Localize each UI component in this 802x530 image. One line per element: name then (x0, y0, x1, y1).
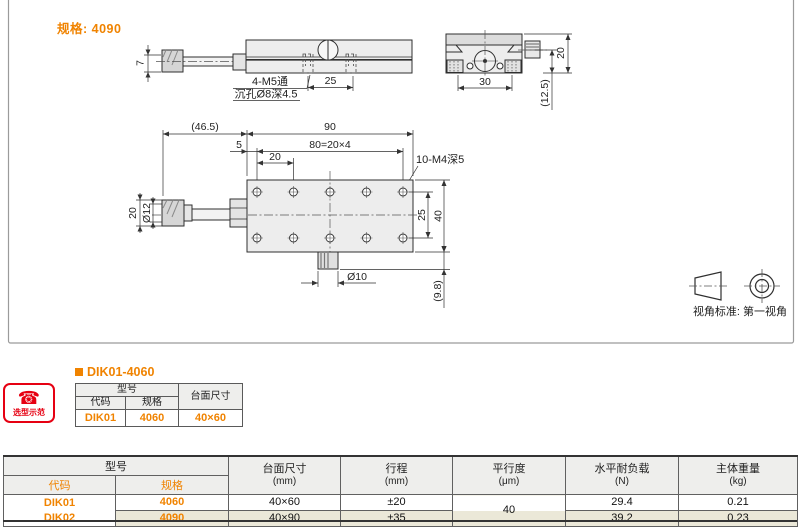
telephone-icon: ☎ (18, 389, 40, 407)
dim-plan-80: 80=20×4 (309, 139, 351, 151)
dim-side-25: 25 (325, 75, 337, 87)
bottom-rule (3, 520, 797, 522)
dim-end-20: 20 (555, 47, 567, 59)
selection-example-label: 选型示范 (13, 407, 45, 418)
dim-plan-9-8: (9.8) (432, 280, 444, 302)
dim-plan-90: 90 (324, 121, 336, 133)
header-model: 型号 (4, 456, 229, 476)
table-row: DIK01 DIK02 4060 40×60 ±20 40 29.4 0.21 (4, 495, 798, 511)
travel-value: ±20 (341, 495, 453, 511)
dim-plan-46-5: (46.5) (191, 121, 218, 133)
example-spec-header: 规格 (126, 397, 179, 410)
load-value: 29.4 (566, 495, 679, 511)
header-size: 台面尺寸 (mm) (229, 456, 341, 495)
example-code-header: 代码 (76, 397, 126, 410)
header-parallelism: 平行度 (μm) (453, 456, 566, 495)
spec-value: 4090 (116, 511, 229, 527)
header-spec: 规格 (116, 476, 229, 495)
header-code: 代码 (4, 476, 116, 495)
size-value: 40×60 (229, 495, 341, 511)
travel-value: ±35 (341, 511, 453, 527)
selection-example-badge: ☎ 选型示范 (3, 383, 55, 423)
example-size-header: 台面尺寸 (179, 384, 243, 410)
dim-plan-5: 5 (236, 139, 242, 151)
dim-plan-40: 40 (432, 210, 444, 222)
example-code-value: DIK01 (76, 410, 126, 427)
bullet-square-icon (75, 368, 83, 376)
example-size-value: 40×60 (179, 410, 243, 427)
dim-side-height: 7 (134, 60, 146, 66)
spec-note: 规格: 4090 (57, 18, 121, 37)
example-model-header: 型号 (76, 384, 179, 397)
example-title-text: DIK01-4060 (87, 365, 154, 379)
header-load: 水平耐负载 (N) (566, 456, 679, 495)
spec-table: 型号 台面尺寸 (mm) 行程 (mm) 平行度 (μm) 水平耐负载 (N) … (3, 455, 798, 527)
dim-end-30: 30 (479, 76, 491, 88)
dim-plan-20: 20 (269, 151, 281, 163)
example-spec-value: 4060 (126, 410, 179, 427)
dim-knob-d12: Ø12 (141, 203, 153, 223)
weight-value: 0.21 (679, 495, 798, 511)
label-plan-tap: 10-M4深5 (416, 153, 464, 166)
dim-end-12-5: (12.5) (539, 79, 551, 106)
dim-plan-d10: Ø10 (347, 271, 367, 283)
technical-drawing-section: 规格: 4090 (0, 0, 802, 350)
dim-knob-20: 20 (127, 207, 139, 219)
header-travel: 行程 (mm) (341, 456, 453, 495)
dim-plan-25: 25 (416, 209, 428, 221)
label-side-counterbore: 沉孔Ø8深4.5 (235, 88, 298, 101)
selection-example-block: DIK01-4060 型号 台面尺寸 代码 规格 DIK01 4060 40×6… (75, 365, 243, 427)
label-side-hole-spec: 4-M5通 (252, 75, 288, 88)
table-row: 4090 40×90 ±35 39.2 0.23 (4, 511, 798, 527)
spec-value: 4060 (116, 495, 229, 511)
load-value: 39.2 (566, 511, 679, 527)
weight-value: 0.23 (679, 511, 798, 527)
size-value: 40×90 (229, 511, 341, 527)
example-title: DIK01-4060 (75, 365, 243, 379)
technical-drawing: 7 4-M5通 沉孔Ø8深4.5 25 30 20 (12.5) (46.5) … (0, 0, 802, 350)
header-weight: 主体重量 (kg) (679, 456, 798, 495)
example-table: 型号 台面尺寸 代码 规格 DIK01 4060 40×60 (75, 383, 243, 427)
code-value: DIK02 (4, 511, 115, 526)
code-value: DIK01 (4, 496, 115, 511)
first-angle-note: 视角标准: 第一视角 (693, 304, 787, 318)
